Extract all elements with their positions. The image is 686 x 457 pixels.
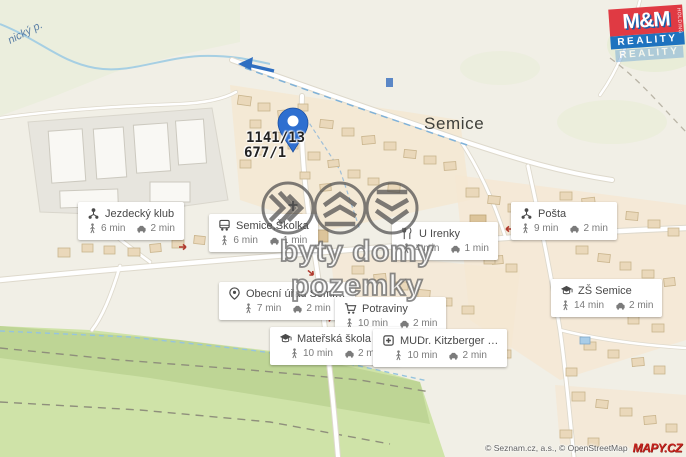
walk-icon: [243, 303, 254, 314]
car-icon: [448, 350, 459, 361]
walk-icon: [87, 223, 98, 234]
walk-icon: [393, 350, 404, 361]
mm-logo-red-box: M&M HOLDING: [608, 4, 684, 36]
town-label: Semice: [424, 114, 484, 134]
map-canvas[interactable]: nický p. Semice 1141/13 677/1 Jezdecký k…: [0, 0, 686, 457]
drive-time: 2 min: [150, 223, 174, 234]
walk-time: 10 min: [407, 350, 437, 361]
walk-icon: [560, 300, 571, 311]
mm-reality-logo: M&M HOLDING REALITY REALITY: [608, 4, 686, 62]
drive-time: 2 min: [583, 223, 607, 234]
map-attribution: © Seznam.cz, a.s., © OpenStreetMap MAPY.…: [485, 441, 682, 455]
poi-card-mudr-kitzberger[interactable]: MUDr. Kitzberger … 10 min2 min: [373, 329, 507, 367]
parcel-number-1: 1141/13: [246, 131, 305, 145]
walk-time: 10 min: [303, 348, 333, 359]
bus-icon: [218, 219, 231, 232]
drive-time: 2 min: [306, 303, 330, 314]
watermark-text: byty domy pozemky: [214, 235, 500, 303]
poi-title: Pošta: [538, 208, 566, 220]
drive-time: 2 min: [413, 318, 437, 329]
car-icon: [569, 223, 580, 234]
cart-icon: [344, 302, 357, 315]
drive-time: 2 min: [629, 300, 653, 311]
car-icon: [344, 348, 355, 359]
poi-card-jezdecky-klub[interactable]: Jezdecký klub 6 min2 min: [78, 202, 184, 240]
walk-time: 9 min: [534, 223, 558, 234]
car-icon: [615, 300, 626, 311]
poi-title: MUDr. Kitzberger …: [400, 335, 498, 347]
mm-logo-text: M&M: [622, 7, 671, 34]
category-icon: [520, 207, 533, 220]
watermark-logo-icons: [258, 177, 428, 239]
landmark-icon: [386, 78, 393, 87]
category-icon: [87, 207, 100, 220]
walk-time: 7 min: [257, 303, 281, 314]
mm-logo-holding-text: HOLDING: [675, 8, 683, 35]
walk-icon: [520, 223, 531, 234]
mapy-cz-logo[interactable]: MAPY.CZ: [633, 441, 682, 455]
copyright-text[interactable]: © Seznam.cz, a.s., © OpenStreetMap: [485, 443, 627, 453]
walk-time: 14 min: [574, 300, 604, 311]
poi-card-posta[interactable]: Pošta 9 min2 min: [511, 202, 617, 240]
walk-icon: [289, 348, 300, 359]
doctor-icon: [382, 334, 395, 347]
school-icon: [279, 332, 292, 345]
poi-title: Jezdecký klub: [105, 208, 174, 220]
parcel-number-2: 677/1: [244, 146, 286, 160]
poi-card-zs-semice[interactable]: ZŠ Semice 14 min2 min: [551, 279, 662, 317]
school-icon: [560, 284, 573, 297]
car-icon: [292, 303, 303, 314]
poi-title: Potraviny: [362, 303, 408, 315]
walk-time: 6 min: [101, 223, 125, 234]
drive-time: 2 min: [462, 350, 486, 361]
car-icon: [136, 223, 147, 234]
poi-title: ZŠ Semice: [578, 285, 632, 297]
